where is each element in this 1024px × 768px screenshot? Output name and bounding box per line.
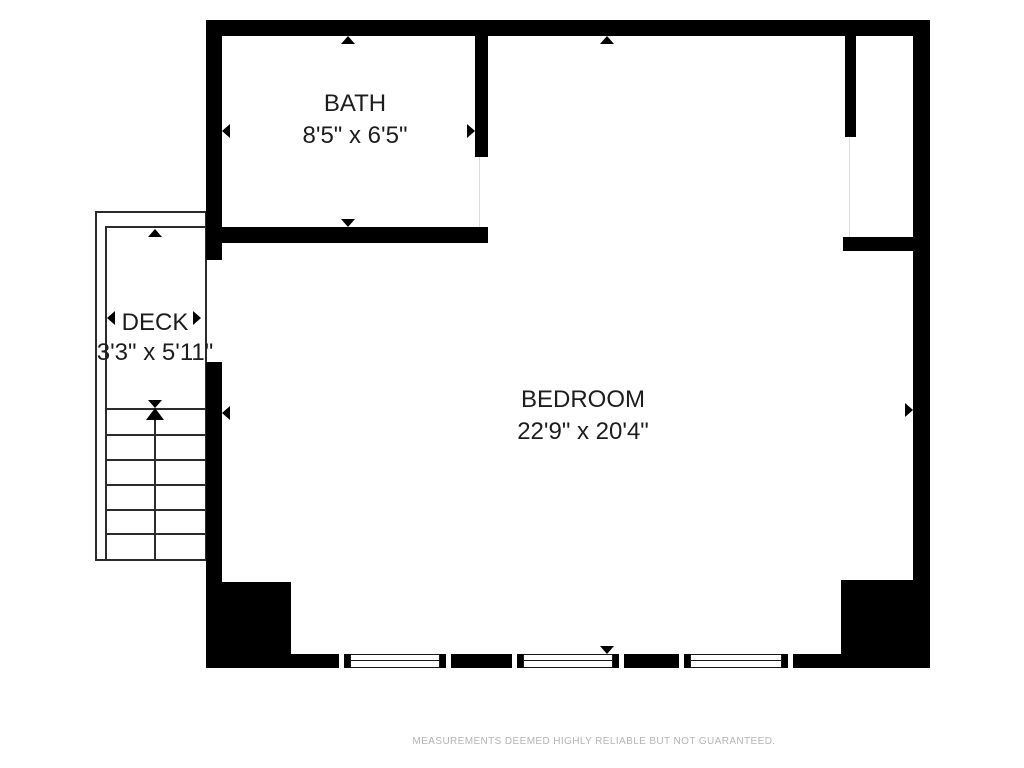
bath-dim-arrow-up-icon [341, 36, 355, 44]
bedroom-dim-arrow-down-icon [600, 646, 614, 654]
closet-door-opening [849, 137, 850, 237]
stair-center-line [154, 417, 156, 559]
closet-left-wall [845, 36, 856, 137]
stair-tread [107, 533, 205, 535]
stairs-up-arrow-icon [146, 408, 164, 420]
corner-block-bottom-left [206, 582, 291, 668]
window-glass [690, 654, 782, 668]
bedroom-dim-arrow-right-icon [905, 403, 913, 417]
bedroom-dims: 22'9" x 20'4" [483, 419, 683, 445]
deck-dim-arrow-up-icon [148, 229, 162, 237]
deck-dims: 3'3" x 5'11" [55, 340, 255, 366]
stair-tread [107, 484, 205, 486]
bedroom-dim-arrow-up-icon [600, 36, 614, 44]
bath-bottom-wall [206, 227, 488, 243]
top-wall [206, 20, 930, 36]
closet-bottom-wall [843, 237, 913, 251]
window-pane-line [351, 660, 439, 661]
window-glass [350, 654, 440, 668]
bath-door-opening [479, 157, 480, 227]
stair-tread [107, 509, 205, 511]
floor-plan: BATH 8'5" x 6'5" DECK 3'3" x 5'11" BEDRO… [0, 0, 1024, 768]
bath-dim-arrow-down-icon [341, 219, 355, 227]
stair-tread [107, 434, 205, 436]
deck-label: DECK [55, 310, 255, 336]
window-pane-line [524, 660, 612, 661]
bath-label: BATH [255, 91, 455, 117]
left-wall-upper [206, 20, 222, 260]
bedroom-dim-arrow-left-icon [222, 406, 230, 420]
bedroom-label: BEDROOM [483, 387, 683, 413]
corner-block-bottom-right [841, 580, 930, 668]
window-glass [523, 654, 613, 668]
deck-dim-arrow-down-icon [148, 400, 162, 408]
stair-tread [107, 459, 205, 461]
bath-dims: 8'5" x 6'5" [255, 123, 455, 149]
window-pane-line [691, 660, 781, 661]
deck-railing-inner-top [105, 226, 205, 228]
bath-right-wall [475, 36, 488, 157]
window-frame-bar [613, 654, 619, 668]
right-wall [913, 20, 930, 668]
bath-dim-arrow-right-icon [467, 124, 475, 138]
window-frame-bar [440, 654, 446, 668]
disclaimer-text: MEASUREMENTS DEEMED HIGHLY RELIABLE BUT … [394, 736, 794, 747]
bath-dim-arrow-left-icon [222, 124, 230, 138]
window-frame-bar [782, 654, 788, 668]
